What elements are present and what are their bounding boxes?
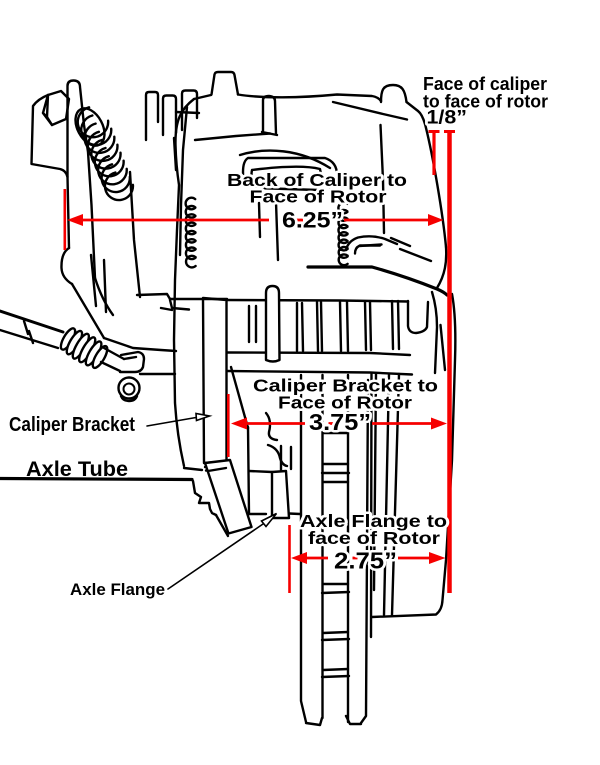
svg-text:2.75”: 2.75” — [334, 548, 397, 574]
svg-text:Face of Rotor: Face of Rotor — [250, 187, 387, 207]
svg-text:3.75”: 3.75” — [309, 409, 371, 435]
svg-text:6.25”: 6.25” — [282, 208, 343, 233]
svg-text:face of Rotor: face of Rotor — [308, 528, 440, 548]
svg-text:Axle Flange: Axle Flange — [70, 580, 165, 599]
svg-text:Axle Tube: Axle Tube — [26, 458, 128, 481]
svg-text:1/8”: 1/8” — [427, 108, 468, 129]
svg-text:Caliper Bracket: Caliper Bracket — [9, 414, 135, 436]
